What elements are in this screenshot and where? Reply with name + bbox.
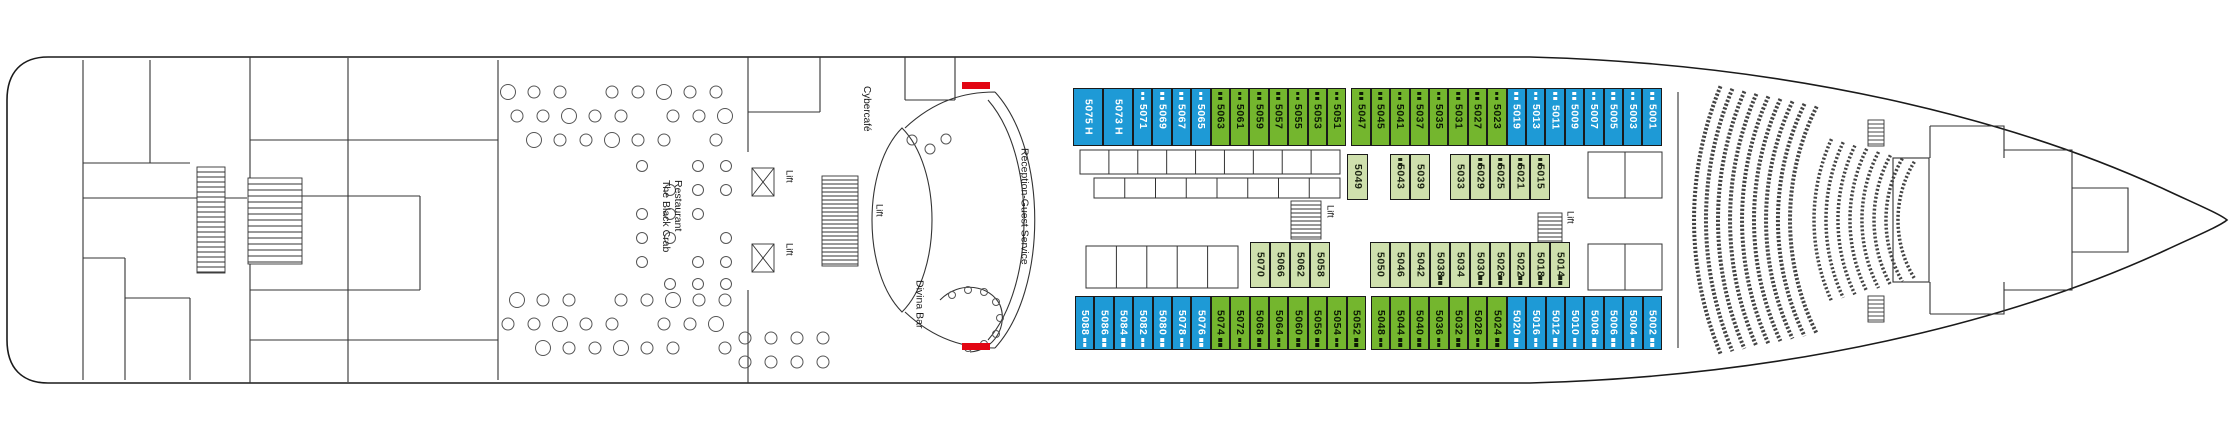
cabin-number: 5051 — [1331, 104, 1342, 129]
cabin-number: 5032 — [1453, 310, 1464, 335]
cabin-5037: 5037 — [1410, 88, 1429, 146]
cabin-number: 5021 — [1515, 164, 1526, 189]
cabin-5080: 5080 — [1153, 296, 1172, 350]
cabin-number: 5029 — [1475, 164, 1486, 189]
cabin-5024: 5024 — [1487, 296, 1506, 350]
cabin-5059: 5059 — [1249, 88, 1268, 146]
cabin-number: 5034 — [1455, 252, 1466, 277]
cabin-5062: 5062 — [1290, 242, 1310, 288]
lift-label-aft-1: Lift — [784, 170, 794, 183]
cabin-number: 5070 — [1255, 252, 1266, 277]
berth-marker-icon — [1316, 92, 1320, 101]
berth-marker-icon — [1219, 92, 1223, 101]
berth-marker-icon — [1122, 338, 1126, 347]
cabin-5060: 5060 — [1288, 296, 1307, 350]
cabin-5011: 5011 — [1545, 88, 1564, 146]
berth-marker-icon — [1398, 92, 1402, 101]
cabin-5075: 5075H — [1073, 88, 1103, 146]
berth-marker-icon — [1083, 338, 1087, 347]
cabin-number: 5012 — [1550, 310, 1561, 335]
cabin-5026: 5026 — [1490, 242, 1510, 288]
cabin-number: 5068 — [1254, 310, 1265, 335]
cabin-number: 5007 — [1589, 104, 1600, 129]
berth-marker-icon — [1335, 338, 1339, 347]
berth-marker-icon — [1437, 338, 1441, 347]
cabin-number: 5054 — [1332, 310, 1343, 335]
cabin-5053: 5053 — [1308, 88, 1327, 146]
cabin-5044: 5044 — [1390, 296, 1409, 350]
cabin-5015: 5015 — [1530, 154, 1550, 200]
cabin-number: 5003 — [1627, 104, 1638, 129]
cabin-number: 5078 — [1176, 310, 1187, 335]
berth-marker-icon — [1418, 92, 1422, 101]
cabin-number: 5061 — [1234, 104, 1245, 129]
cabin-number: 5031 — [1453, 104, 1464, 129]
cabin-number: 5073 — [1113, 99, 1124, 124]
berth-marker-icon — [1534, 92, 1538, 101]
fire-door-marker-top — [962, 82, 990, 89]
cabin-5054: 5054 — [1327, 296, 1346, 350]
cabin-5041: 5041 — [1390, 88, 1409, 146]
berth-marker-icon — [1538, 276, 1542, 285]
berth-marker-icon — [1651, 338, 1655, 347]
cabin-number: 5065 — [1196, 104, 1207, 129]
cabin-number: 5045 — [1375, 104, 1386, 129]
cabin-5071: 5071 — [1133, 88, 1152, 146]
cabin-number: 5059 — [1254, 104, 1265, 129]
berth-marker-icon — [1296, 92, 1300, 101]
cabin-5061: 5061 — [1230, 88, 1249, 146]
berth-marker-icon — [1515, 338, 1519, 347]
berth-marker-icon — [1199, 92, 1203, 101]
cabin-number: 5035 — [1433, 104, 1444, 129]
cabin-number: 5042 — [1415, 252, 1426, 277]
label-restaurant-line2: Restaurant — [672, 180, 684, 231]
berth-marker-icon — [1180, 338, 1184, 347]
cabin-number: 5030 — [1475, 252, 1486, 277]
cabin-number: 5041 — [1395, 104, 1406, 129]
cabin-5047: 5047 — [1351, 88, 1370, 146]
cabin-5074: 5074 — [1211, 296, 1230, 350]
berth-marker-icon — [1180, 92, 1184, 101]
cabin-5008: 5008 — [1584, 296, 1603, 350]
cabin-number: 5064 — [1273, 310, 1284, 335]
cabin-number: 5062 — [1295, 252, 1306, 277]
deck-plan-drawing — [0, 0, 2232, 440]
cabin-number: 5040 — [1414, 310, 1425, 335]
cabin-5027: 5027 — [1468, 88, 1487, 146]
berth-marker-icon — [1316, 338, 1320, 347]
berth-marker-icon — [1631, 92, 1635, 101]
cabin-5023: 5023 — [1487, 88, 1506, 146]
cabin-number: 5037 — [1414, 104, 1425, 129]
cabin-number: 5005 — [1608, 104, 1619, 129]
cabin-5052: 5052 — [1347, 296, 1366, 350]
cabin-5003: 5003 — [1623, 88, 1642, 146]
cabin-number: 5015 — [1535, 164, 1546, 189]
deck-plan: 5075H5073H507150695067506550635061505950… — [0, 0, 2232, 440]
cabin-5082: 5082 — [1133, 296, 1152, 350]
cabin-5033: 5033 — [1450, 154, 1470, 200]
cabin-number: 5047 — [1356, 104, 1367, 129]
cabin-5010: 5010 — [1565, 296, 1584, 350]
label-cybercafe: Cybercafé — [861, 86, 871, 132]
cabin-number: 5026 — [1495, 252, 1506, 277]
berth-marker-icon — [1573, 92, 1577, 101]
cabin-5078: 5078 — [1172, 296, 1191, 350]
cabin-number: 5082 — [1138, 310, 1149, 335]
cabin-number: 5060 — [1293, 310, 1304, 335]
cabin-5040: 5040 — [1410, 296, 1429, 350]
cabin-5007: 5007 — [1584, 88, 1603, 146]
accessible-cabin-tag: H — [1113, 127, 1124, 135]
cabin-number: 5009 — [1569, 104, 1580, 129]
cabin-number: 5055 — [1293, 104, 1304, 129]
cabin-5056: 5056 — [1308, 296, 1327, 350]
cabin-number: 5033 — [1455, 164, 1466, 189]
berth-marker-icon — [1141, 338, 1145, 347]
cabin-5021: 5021 — [1510, 154, 1530, 200]
cabin-5069: 5069 — [1152, 88, 1171, 146]
berth-marker-icon — [1398, 158, 1402, 167]
label-restaurant-line1: The Black Crab — [660, 180, 672, 252]
cabin-number: 5011 — [1550, 105, 1561, 130]
cabin-number: 5018 — [1535, 252, 1546, 277]
cabin-5002: 5002 — [1643, 296, 1662, 350]
cabin-5004: 5004 — [1623, 296, 1642, 350]
cabin-number: 5043 — [1395, 164, 1406, 189]
cabin-number: 5038 — [1435, 252, 1446, 277]
cabin-number: 5084 — [1118, 310, 1129, 335]
berth-marker-icon — [1515, 92, 1519, 101]
berth-marker-icon — [1437, 92, 1441, 101]
berth-marker-icon — [1534, 338, 1538, 347]
cabin-number: 5049 — [1352, 164, 1363, 189]
cabin-number: 5069 — [1157, 104, 1168, 129]
cabin-number: 5075 — [1083, 99, 1094, 124]
cabin-5088: 5088 — [1075, 296, 1094, 350]
cabin-number: 5002 — [1647, 310, 1658, 335]
cabin-5006: 5006 — [1604, 296, 1623, 350]
cabin-number: 5019 — [1511, 104, 1522, 129]
lift-label-mid: Lift — [1325, 205, 1335, 218]
berth-marker-icon — [1238, 92, 1242, 101]
berth-marker-icon — [1258, 338, 1262, 347]
berth-marker-icon — [1573, 338, 1577, 347]
cabin-number: 5027 — [1472, 104, 1483, 129]
berth-marker-icon — [1398, 338, 1402, 347]
cabin-5034: 5034 — [1450, 242, 1470, 288]
cabin-5073: 5073H — [1103, 88, 1133, 146]
fire-door-marker-bottom — [962, 343, 990, 350]
cabin-number: 5010 — [1569, 310, 1580, 335]
berth-marker-icon — [1160, 92, 1164, 101]
cabin-5013: 5013 — [1526, 88, 1545, 146]
cabin-number: 5039 — [1415, 164, 1426, 189]
cabin-number: 5028 — [1472, 310, 1483, 335]
cabin-5086: 5086 — [1094, 296, 1113, 350]
cabin-number: 5006 — [1608, 310, 1619, 335]
lift-label-atrium: Lift — [874, 204, 884, 217]
cabin-5020: 5020 — [1507, 296, 1526, 350]
cabin-5014: 5014 — [1550, 242, 1570, 288]
cabin-5055: 5055 — [1288, 88, 1307, 146]
cabin-5065: 5065 — [1191, 88, 1210, 146]
cabin-5051: 5051 — [1327, 88, 1346, 146]
cabin-number: 5063 — [1215, 104, 1226, 129]
cabin-5036: 5036 — [1429, 296, 1448, 350]
cabin-number: 5066 — [1275, 252, 1286, 277]
berth-marker-icon — [1418, 338, 1422, 347]
berth-marker-icon — [1553, 92, 1557, 101]
cabin-number: 5036 — [1434, 310, 1445, 335]
berth-marker-icon — [1518, 158, 1522, 167]
cabin-number: 5008 — [1589, 310, 1600, 335]
berth-marker-icon — [1199, 338, 1203, 347]
cabin-5025: 5025 — [1490, 154, 1510, 200]
cabin-number: 5020 — [1511, 310, 1522, 335]
cabin-number: 5072 — [1235, 310, 1246, 335]
cabin-5049: 5049 — [1347, 154, 1368, 200]
cabin-5057: 5057 — [1269, 88, 1288, 146]
cabin-number: 5024 — [1492, 310, 1503, 335]
cabin-5046: 5046 — [1390, 242, 1410, 288]
berth-marker-icon — [1219, 338, 1223, 347]
cabin-number: 5046 — [1395, 252, 1406, 277]
cabin-5072: 5072 — [1230, 296, 1249, 350]
berth-marker-icon — [1141, 92, 1145, 101]
berth-marker-icon — [1355, 338, 1359, 347]
cabin-5042: 5042 — [1410, 242, 1430, 288]
cabin-number: 5080 — [1157, 310, 1168, 335]
cabin-5032: 5032 — [1449, 296, 1468, 350]
cabin-number: 5076 — [1196, 310, 1207, 335]
berth-marker-icon — [1277, 92, 1281, 101]
berth-marker-icon — [1495, 92, 1499, 101]
berth-marker-icon — [1438, 276, 1442, 285]
cabin-5050: 5050 — [1370, 242, 1390, 288]
cabin-5016: 5016 — [1526, 296, 1545, 350]
berth-marker-icon — [1612, 92, 1616, 101]
berth-marker-icon — [1457, 338, 1461, 347]
cabin-number: 5053 — [1312, 104, 1323, 129]
berth-marker-icon — [1650, 92, 1654, 101]
cabin-5045: 5045 — [1371, 88, 1390, 146]
berth-marker-icon — [1592, 338, 1596, 347]
berth-marker-icon — [1612, 338, 1616, 347]
cabin-number: 5022 — [1515, 252, 1526, 277]
cabin-number: 5050 — [1375, 252, 1386, 277]
accessible-cabin-tag: H — [1083, 127, 1094, 135]
label-restaurant: The Black Crab Restaurant — [660, 180, 684, 252]
cabin-5031: 5031 — [1448, 88, 1467, 146]
cabin-5019: 5019 — [1507, 88, 1526, 146]
berth-marker-icon — [1518, 276, 1522, 285]
cabin-number: 5014 — [1555, 252, 1566, 277]
cabin-number: 5067 — [1176, 104, 1187, 129]
berth-marker-icon — [1478, 158, 1482, 167]
lift-label-fwd: Lift — [1565, 211, 1575, 224]
cabin-number: 5052 — [1351, 310, 1362, 335]
berth-marker-icon — [1296, 338, 1300, 347]
cabin-number: 5071 — [1137, 104, 1148, 129]
cabin-number: 5044 — [1395, 310, 1406, 335]
berth-marker-icon — [1476, 338, 1480, 347]
cabin-number: 5088 — [1079, 310, 1090, 335]
berth-marker-icon — [1379, 92, 1383, 101]
cabin-number: 5025 — [1495, 164, 1506, 189]
cabin-number: 5048 — [1375, 310, 1386, 335]
berth-marker-icon — [1538, 158, 1542, 167]
cabin-number: 5086 — [1099, 310, 1110, 335]
cabin-5009: 5009 — [1565, 88, 1584, 146]
cabin-5066: 5066 — [1270, 242, 1290, 288]
berth-marker-icon — [1478, 276, 1482, 285]
berth-marker-icon — [1558, 276, 1562, 285]
berth-marker-icon — [1476, 92, 1480, 101]
cabin-5067: 5067 — [1172, 88, 1191, 146]
cabin-number: 5058 — [1315, 252, 1326, 277]
label-divina-bar: Divina Bar — [914, 280, 925, 328]
cabin-number: 5057 — [1273, 104, 1284, 129]
cabin-5035: 5035 — [1429, 88, 1448, 146]
berth-marker-icon — [1592, 92, 1596, 101]
label-reception: Reception-Guest Service — [1019, 148, 1030, 265]
berth-marker-icon — [1631, 338, 1635, 347]
berth-marker-icon — [1335, 92, 1339, 101]
cabin-number: 5001 — [1647, 104, 1658, 129]
cabin-5070: 5070 — [1250, 242, 1270, 288]
berth-marker-icon — [1456, 92, 1460, 101]
cabin-number: 5023 — [1492, 104, 1503, 129]
berth-marker-icon — [1554, 338, 1558, 347]
berth-marker-icon — [1257, 92, 1261, 101]
cabin-5048: 5048 — [1371, 296, 1390, 350]
cabin-5029: 5029 — [1470, 154, 1490, 200]
cabin-5063: 5063 — [1211, 88, 1230, 146]
cabin-5084: 5084 — [1114, 296, 1133, 350]
berth-marker-icon — [1238, 338, 1242, 347]
cabin-5076: 5076 — [1191, 296, 1210, 350]
cabin-number: 5013 — [1530, 104, 1541, 129]
cabin-5068: 5068 — [1250, 296, 1269, 350]
cabin-5001: 5001 — [1642, 88, 1661, 146]
berth-marker-icon — [1498, 158, 1502, 167]
cabin-5064: 5064 — [1269, 296, 1288, 350]
lift-label-aft-2: Lift — [784, 243, 794, 256]
cabin-number: 5016 — [1531, 310, 1542, 335]
cabin-number: 5004 — [1628, 310, 1639, 335]
berth-marker-icon — [1359, 92, 1363, 101]
cabin-number: 5056 — [1312, 310, 1323, 335]
cabin-5005: 5005 — [1604, 88, 1623, 146]
cabin-5018: 5018 — [1530, 242, 1550, 288]
berth-marker-icon — [1161, 338, 1165, 347]
berth-marker-icon — [1495, 338, 1499, 347]
cabin-5022: 5022 — [1510, 242, 1530, 288]
cabin-5058: 5058 — [1310, 242, 1330, 288]
cabin-5028: 5028 — [1468, 296, 1487, 350]
cabin-5012: 5012 — [1546, 296, 1565, 350]
berth-marker-icon — [1102, 338, 1106, 347]
berth-marker-icon — [1277, 338, 1281, 347]
berth-marker-icon — [1498, 276, 1502, 285]
cabin-number: 5074 — [1215, 310, 1226, 335]
berth-marker-icon — [1379, 338, 1383, 347]
cabin-5030: 5030 — [1470, 242, 1490, 288]
cabin-5043: 5043 — [1390, 154, 1410, 200]
cabin-5038: 5038 — [1430, 242, 1450, 288]
cabin-5039: 5039 — [1410, 154, 1430, 200]
